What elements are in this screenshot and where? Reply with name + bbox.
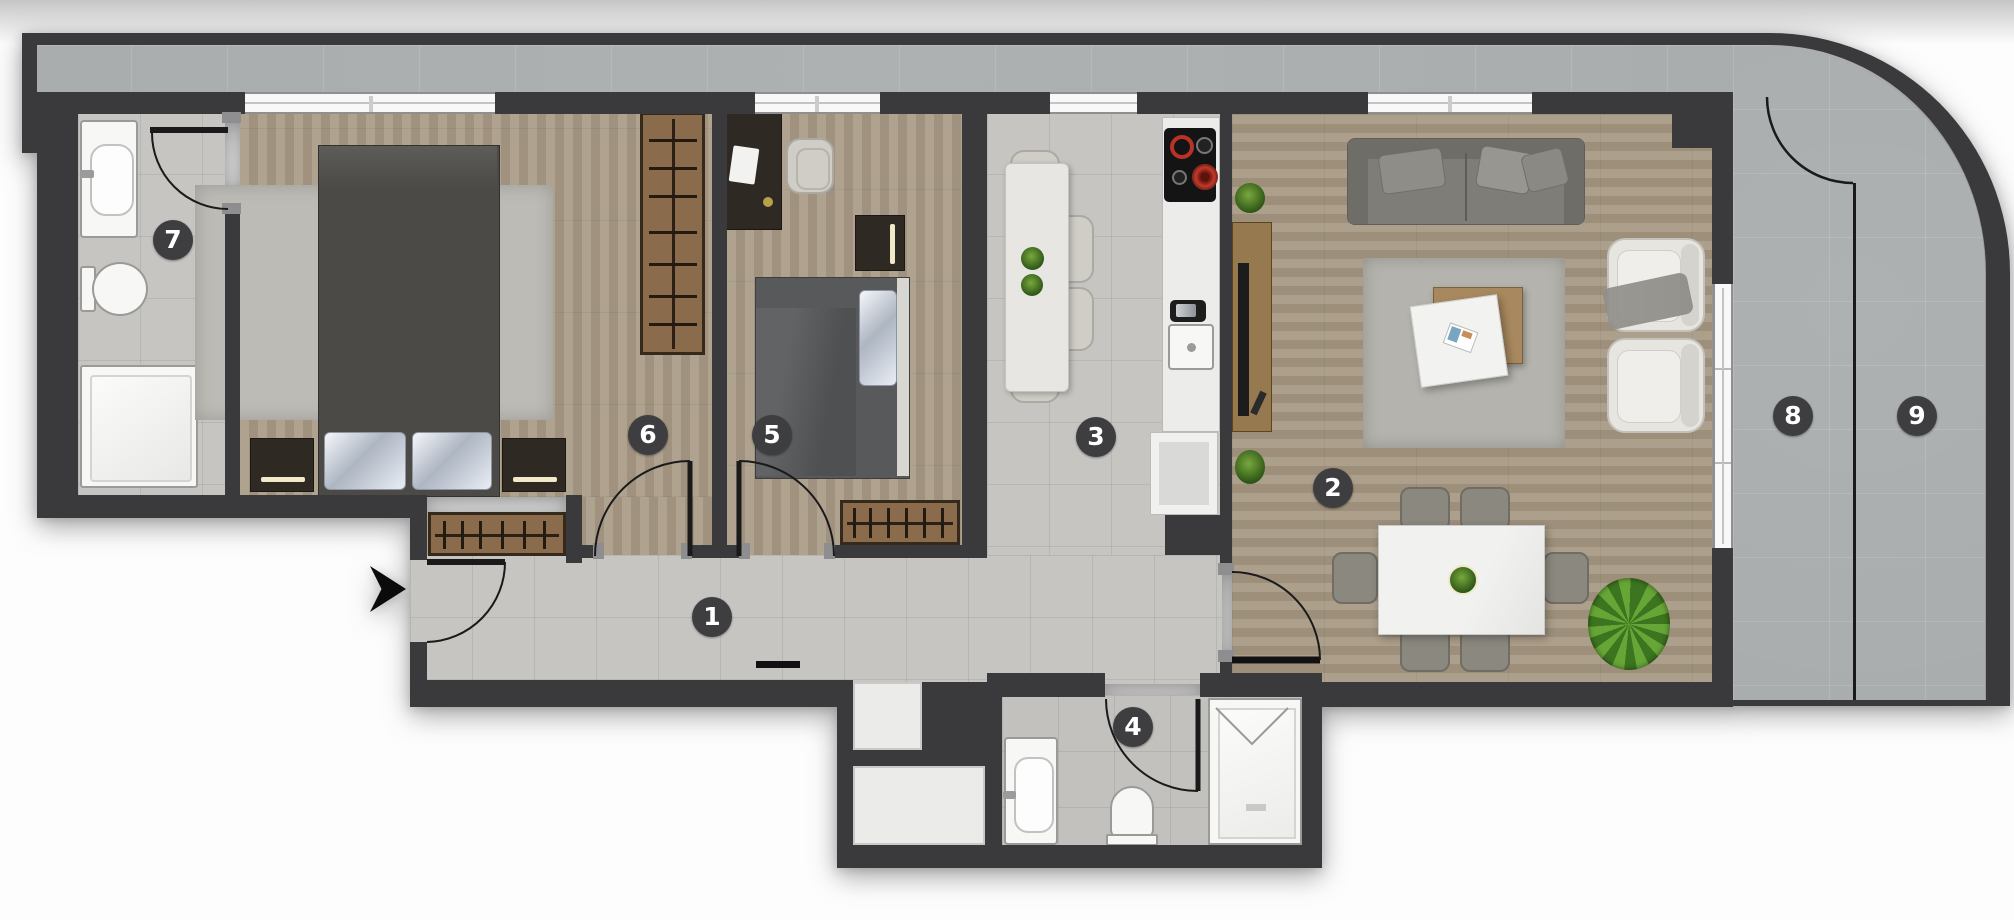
- wall-rooms65: [712, 112, 727, 558]
- exterior-band-curve: [1742, 33, 2010, 706]
- hanger-icon: [905, 508, 908, 538]
- bed6-pillow-left: [324, 432, 406, 490]
- window-terrace-door: [1713, 284, 1733, 548]
- hanger-icon: [887, 508, 890, 538]
- hinge-post: [739, 543, 750, 559]
- wall-room5-kitchen: [962, 112, 987, 558]
- hinge-post: [681, 543, 692, 559]
- kitchen-cabinet: [1150, 432, 1218, 515]
- wardrobe6-open-closet: [640, 112, 705, 355]
- hanger-icon: [649, 167, 697, 170]
- hanger-icon: [649, 195, 697, 198]
- laptop-icon: [729, 145, 760, 184]
- nightstand-right: [502, 438, 566, 492]
- wall-bath7-right: [225, 210, 240, 495]
- tv-console: [1232, 222, 1272, 432]
- room-label-9: 9: [1897, 396, 1937, 436]
- window-bedroom5: [755, 92, 880, 114]
- shower4-drain: [1246, 804, 1266, 811]
- hinge-post: [222, 112, 241, 123]
- shower-tray7-inner: [90, 375, 192, 482]
- hanger-icon: [543, 521, 546, 549]
- room-label-6: 6: [628, 415, 668, 455]
- hanger-icon: [649, 295, 697, 298]
- nightstand-left: [250, 438, 314, 492]
- hinge-post: [1218, 650, 1234, 662]
- coffee-table-white: [1410, 294, 1509, 387]
- hanger-icon: [923, 508, 926, 538]
- ledge-strip-floor: [35, 45, 1733, 92]
- wall-left: [37, 92, 78, 518]
- armchair-1: [1607, 238, 1705, 332]
- window-kitchen: [1050, 92, 1137, 114]
- hanger-icon: [523, 521, 526, 549]
- hinge-post: [1218, 563, 1234, 575]
- bed5-pillow: [859, 290, 897, 386]
- hinge-post: [824, 543, 835, 559]
- shower-tray7: [80, 365, 198, 488]
- hanger-icon: [869, 508, 872, 538]
- nightstand5-led: [890, 224, 895, 264]
- wall-bottom-section: [837, 845, 1322, 868]
- armchair2-back: [1681, 344, 1699, 427]
- wall-shaft-mid: [852, 750, 985, 766]
- chair-seatline: [796, 148, 830, 190]
- hanger-icon: [461, 521, 464, 549]
- room-label-8: 8: [1773, 396, 1813, 436]
- wall-left-lip: [22, 33, 37, 153]
- dining-chair-right: [1543, 552, 1589, 604]
- room-label-5: 5: [752, 415, 792, 455]
- wall-hall-bottom: [410, 680, 852, 707]
- nightstand5: [855, 215, 905, 271]
- hanger-icon: [941, 508, 944, 538]
- threshold-mark: [756, 661, 800, 668]
- faucet-steel: [1176, 304, 1196, 317]
- double-bed: [318, 145, 500, 497]
- room-label-4: 4: [1113, 707, 1153, 747]
- window-living: [1368, 92, 1532, 114]
- nightstand-led: [261, 477, 305, 482]
- hanger-icon: [479, 521, 482, 549]
- coat-rack-rail: [435, 534, 559, 537]
- window-mullion: [815, 96, 819, 112]
- washbasin4: [1004, 737, 1058, 845]
- wall-bottom-left: [37, 495, 427, 518]
- desk5-chair: [786, 138, 834, 194]
- dresser5-open-closet: [840, 500, 960, 545]
- floor-plan-canvas: 1 2 3 4 5 6 7 8 9: [0, 0, 2014, 920]
- hanger-icon: [501, 521, 504, 549]
- wall-living-right-upper: [1712, 148, 1733, 284]
- plant-living-bottom: [1235, 450, 1265, 484]
- service-shaft-large: [853, 766, 985, 845]
- toilet4: [1106, 786, 1158, 846]
- shower4-inner: [1218, 708, 1296, 839]
- hanger-icon: [649, 231, 697, 234]
- wall-niche-left-upper: [410, 515, 427, 560]
- cooktop: [1164, 128, 1216, 202]
- toilet7-bowl: [92, 262, 148, 316]
- burner-red-ring: [1170, 135, 1194, 159]
- exterior-band-top: [22, 33, 1762, 45]
- wall-bath4-top-right: [1200, 673, 1310, 697]
- sofa-seat-split: [1465, 153, 1467, 221]
- desk-lamp-icon: [763, 197, 773, 207]
- burner-dark-small: [1172, 170, 1187, 185]
- duvet-fold: [319, 146, 497, 188]
- hanger-icon: [649, 263, 697, 266]
- hanger-icon: [649, 139, 697, 142]
- sofa-pillow1: [1378, 147, 1447, 196]
- plant-on-kitchen-table-1: [1021, 247, 1044, 270]
- bed5-frame: [897, 278, 909, 476]
- plant-on-kitchen-table-2: [1021, 274, 1043, 296]
- palm-plant: [1588, 578, 1670, 670]
- washbasin4-bowl: [1014, 757, 1054, 833]
- service-shaft-small: [853, 682, 922, 750]
- hanger-icon: [649, 323, 697, 326]
- wall-top-4: [1137, 92, 1368, 114]
- wall-living-right-lower: [1712, 548, 1733, 707]
- cabinet-inner: [1159, 442, 1209, 505]
- window-frame-line: [1722, 288, 1724, 544]
- sofa-arm-left: [1348, 139, 1368, 224]
- wall-shaft-block: [922, 682, 1002, 750]
- desk5: [718, 112, 782, 230]
- window-mullion: [369, 96, 373, 112]
- magazine-icon: [1443, 322, 1479, 353]
- plant-on-dining-table: [1448, 565, 1478, 595]
- faucet-icon: [80, 170, 94, 178]
- hallway-floor: [410, 555, 1222, 684]
- window-bedroom6: [245, 92, 495, 114]
- faucet-icon: [1003, 791, 1016, 799]
- remote-icon: [1250, 391, 1266, 416]
- throw-blanket: [1602, 272, 1695, 331]
- sofa-pillow3: [1520, 146, 1570, 193]
- wall-top-2: [495, 92, 755, 114]
- entrance-coat-rack: [428, 512, 566, 556]
- kitchen-sink: [1168, 324, 1214, 370]
- window-mullion: [1448, 96, 1452, 112]
- wall-kitchen-jut: [1165, 515, 1222, 555]
- sink-drain: [1187, 343, 1196, 352]
- tv-icon: [1238, 263, 1249, 416]
- washbasin-bowl: [90, 144, 134, 216]
- room-label-7: 7: [153, 220, 193, 260]
- floor-plan: 1 2 3 4 5 6 7 8 9: [0, 0, 2014, 920]
- sofa: [1347, 138, 1585, 225]
- hanger-icon: [853, 508, 856, 538]
- burner-dark: [1196, 137, 1213, 154]
- washbasin-counter: [80, 120, 138, 238]
- armchair2-cushion: [1617, 350, 1681, 423]
- kitchen-faucet: [1170, 300, 1206, 322]
- dining-chair-left: [1332, 552, 1378, 604]
- bed6-pillow-right: [412, 432, 492, 490]
- wall-door5-right: [834, 545, 962, 558]
- dresser5-rail: [847, 522, 953, 525]
- wall-door65-mid: [690, 545, 739, 558]
- wall-kitchen-living: [1220, 92, 1232, 573]
- wardrobe6-rail: [672, 119, 675, 349]
- room-label-2: 2: [1313, 468, 1353, 508]
- hinge-post: [593, 543, 604, 559]
- wall-shaft-left: [837, 680, 853, 868]
- wall-step-block: [1672, 92, 1733, 148]
- wall-top-3: [880, 92, 1050, 114]
- toilet4-bowl: [1110, 786, 1154, 838]
- room-label-3: 3: [1076, 417, 1116, 457]
- entrance-arrow-icon: [370, 566, 406, 612]
- hanger-icon: [443, 521, 446, 549]
- terrace-bottom-line: [1733, 700, 1753, 706]
- wall-bath4-top-left: [987, 673, 1105, 697]
- toilet7: [80, 262, 148, 316]
- wall-living-bottom: [1302, 682, 1733, 707]
- plant-living-top: [1235, 183, 1265, 213]
- armchair-2: [1607, 338, 1705, 433]
- hinge-post: [222, 203, 241, 214]
- shower4: [1208, 698, 1302, 845]
- wall-niche-left-lower: [410, 642, 427, 682]
- nightstand-led: [513, 477, 557, 482]
- room-label-1: 1: [692, 597, 732, 637]
- burner-red-glow: [1192, 164, 1218, 190]
